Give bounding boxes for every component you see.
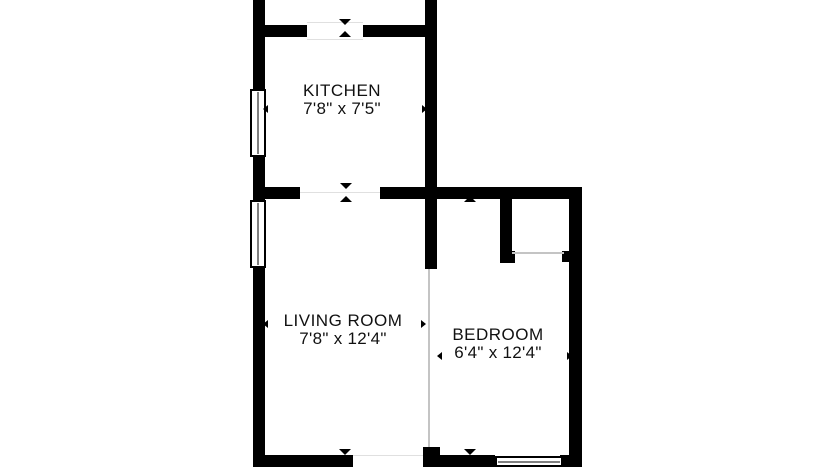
opening-line-top-lower <box>307 39 363 40</box>
wall-bottom-left-segment <box>265 455 353 467</box>
wall-kitchen-top-right-segment <box>363 25 425 37</box>
room-dimensions: 6'4" x 12'4" <box>398 344 598 363</box>
wall-kitchen-living-left-segment <box>265 187 300 199</box>
room-name: BEDROOM <box>398 326 598 344</box>
window-pane-line <box>258 203 259 265</box>
measure-arrow-down-icon <box>339 449 351 455</box>
wall-bottom-divider-stub <box>423 447 440 467</box>
opening-line-bottom <box>353 455 423 456</box>
wall-kitchen-top-left-segment <box>265 25 307 37</box>
window-pane-line <box>498 461 560 462</box>
floor-plan: KITCHEN 7'8" x 7'5" LIVING ROOM 7'8" x 1… <box>0 0 835 467</box>
measure-arrow-down-icon <box>340 183 352 189</box>
room-name: KITCHEN <box>242 82 442 100</box>
wall-kitchen-right <box>425 0 437 269</box>
measure-arrow-down-icon <box>464 449 476 455</box>
opening-line-kitchen-living <box>300 192 380 193</box>
window-living-room-left <box>250 200 266 268</box>
wall-bottom-mid-segment <box>440 455 495 467</box>
window-bedroom-bottom <box>495 456 563 467</box>
measure-arrow-up-icon <box>339 31 351 37</box>
room-label-bedroom: BEDROOM 6'4" x 12'4" <box>398 326 598 363</box>
room-label-kitchen: KITCHEN 7'8" x 7'5" <box>242 82 442 119</box>
wall-kitchen-living-right-segment <box>380 187 425 199</box>
wall-bedroom-top <box>437 187 582 199</box>
room-dimensions: 7'8" x 7'5" <box>242 100 442 119</box>
opening-line-top-upper <box>307 22 363 23</box>
measure-arrow-down-icon <box>339 19 351 25</box>
measure-arrow-up-icon <box>464 196 476 202</box>
closet-door-track-line <box>512 252 564 254</box>
measure-arrow-up-icon <box>340 196 352 202</box>
